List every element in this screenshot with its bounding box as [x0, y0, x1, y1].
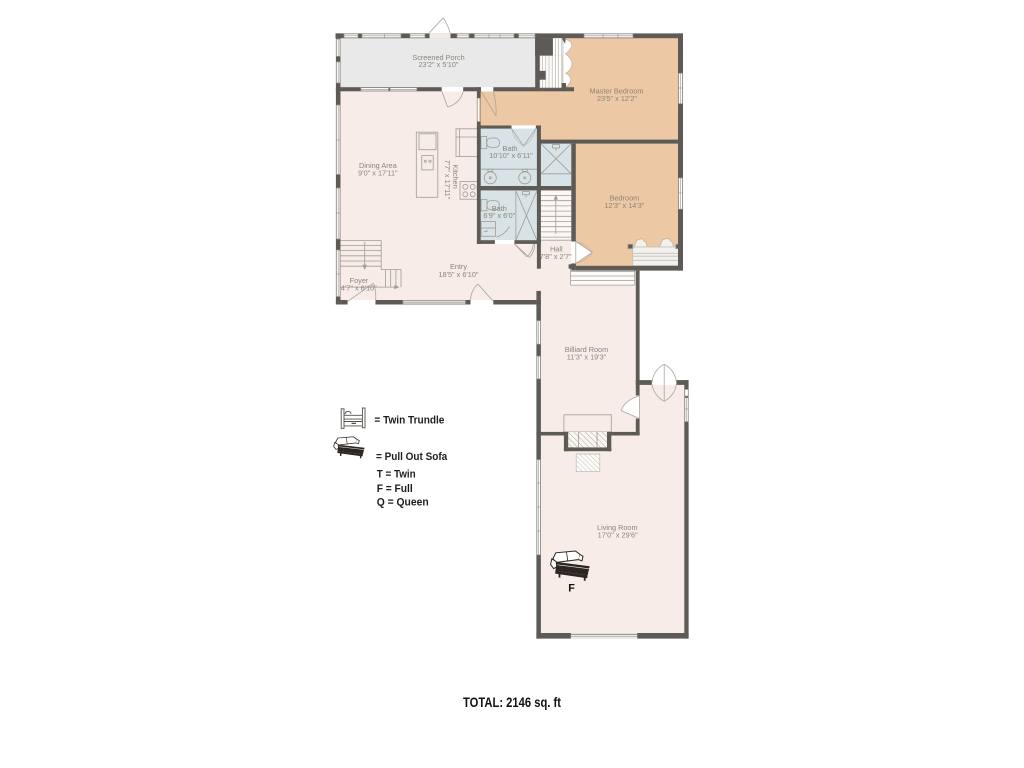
svg-text:23'5" x 12'2": 23'5" x 12'2" — [597, 94, 637, 103]
svg-text:17'0" x 29'6": 17'0" x 29'6" — [598, 531, 638, 540]
svg-text:6'9" x 6'0": 6'9" x 6'0" — [483, 211, 515, 220]
svg-text:23'2" x 5'10": 23'2" x 5'10" — [418, 60, 458, 69]
svg-text:10'10" x 6'11": 10'10" x 6'11" — [489, 151, 533, 160]
svg-text:Q = Queen: Q = Queen — [377, 497, 429, 509]
svg-text:9'0" x 17'11": 9'0" x 17'11" — [358, 168, 398, 177]
svg-text:F: F — [568, 583, 575, 595]
svg-text:= Pull Out Sofa: = Pull Out Sofa — [376, 451, 448, 463]
svg-text:18'5" x 6'10": 18'5" x 6'10" — [438, 270, 478, 279]
svg-text:12'3" x 14'3": 12'3" x 14'3" — [604, 201, 644, 210]
svg-text:F = Full: F = Full — [377, 483, 413, 495]
svg-text:11'3" x 19'3": 11'3" x 19'3" — [567, 352, 607, 361]
svg-text:7'8" x 2'7": 7'8" x 2'7" — [540, 252, 572, 261]
svg-text:= Twin Trundle: = Twin Trundle — [374, 414, 444, 426]
svg-text:4'7" x 6'10": 4'7" x 6'10" — [341, 283, 377, 292]
svg-text:7'7" x 17'11": 7'7" x 17'11" — [443, 160, 452, 200]
svg-text:T = Twin: T = Twin — [377, 468, 416, 480]
svg-text:TOTAL: 2146 sq. ft: TOTAL: 2146 sq. ft — [463, 695, 561, 710]
